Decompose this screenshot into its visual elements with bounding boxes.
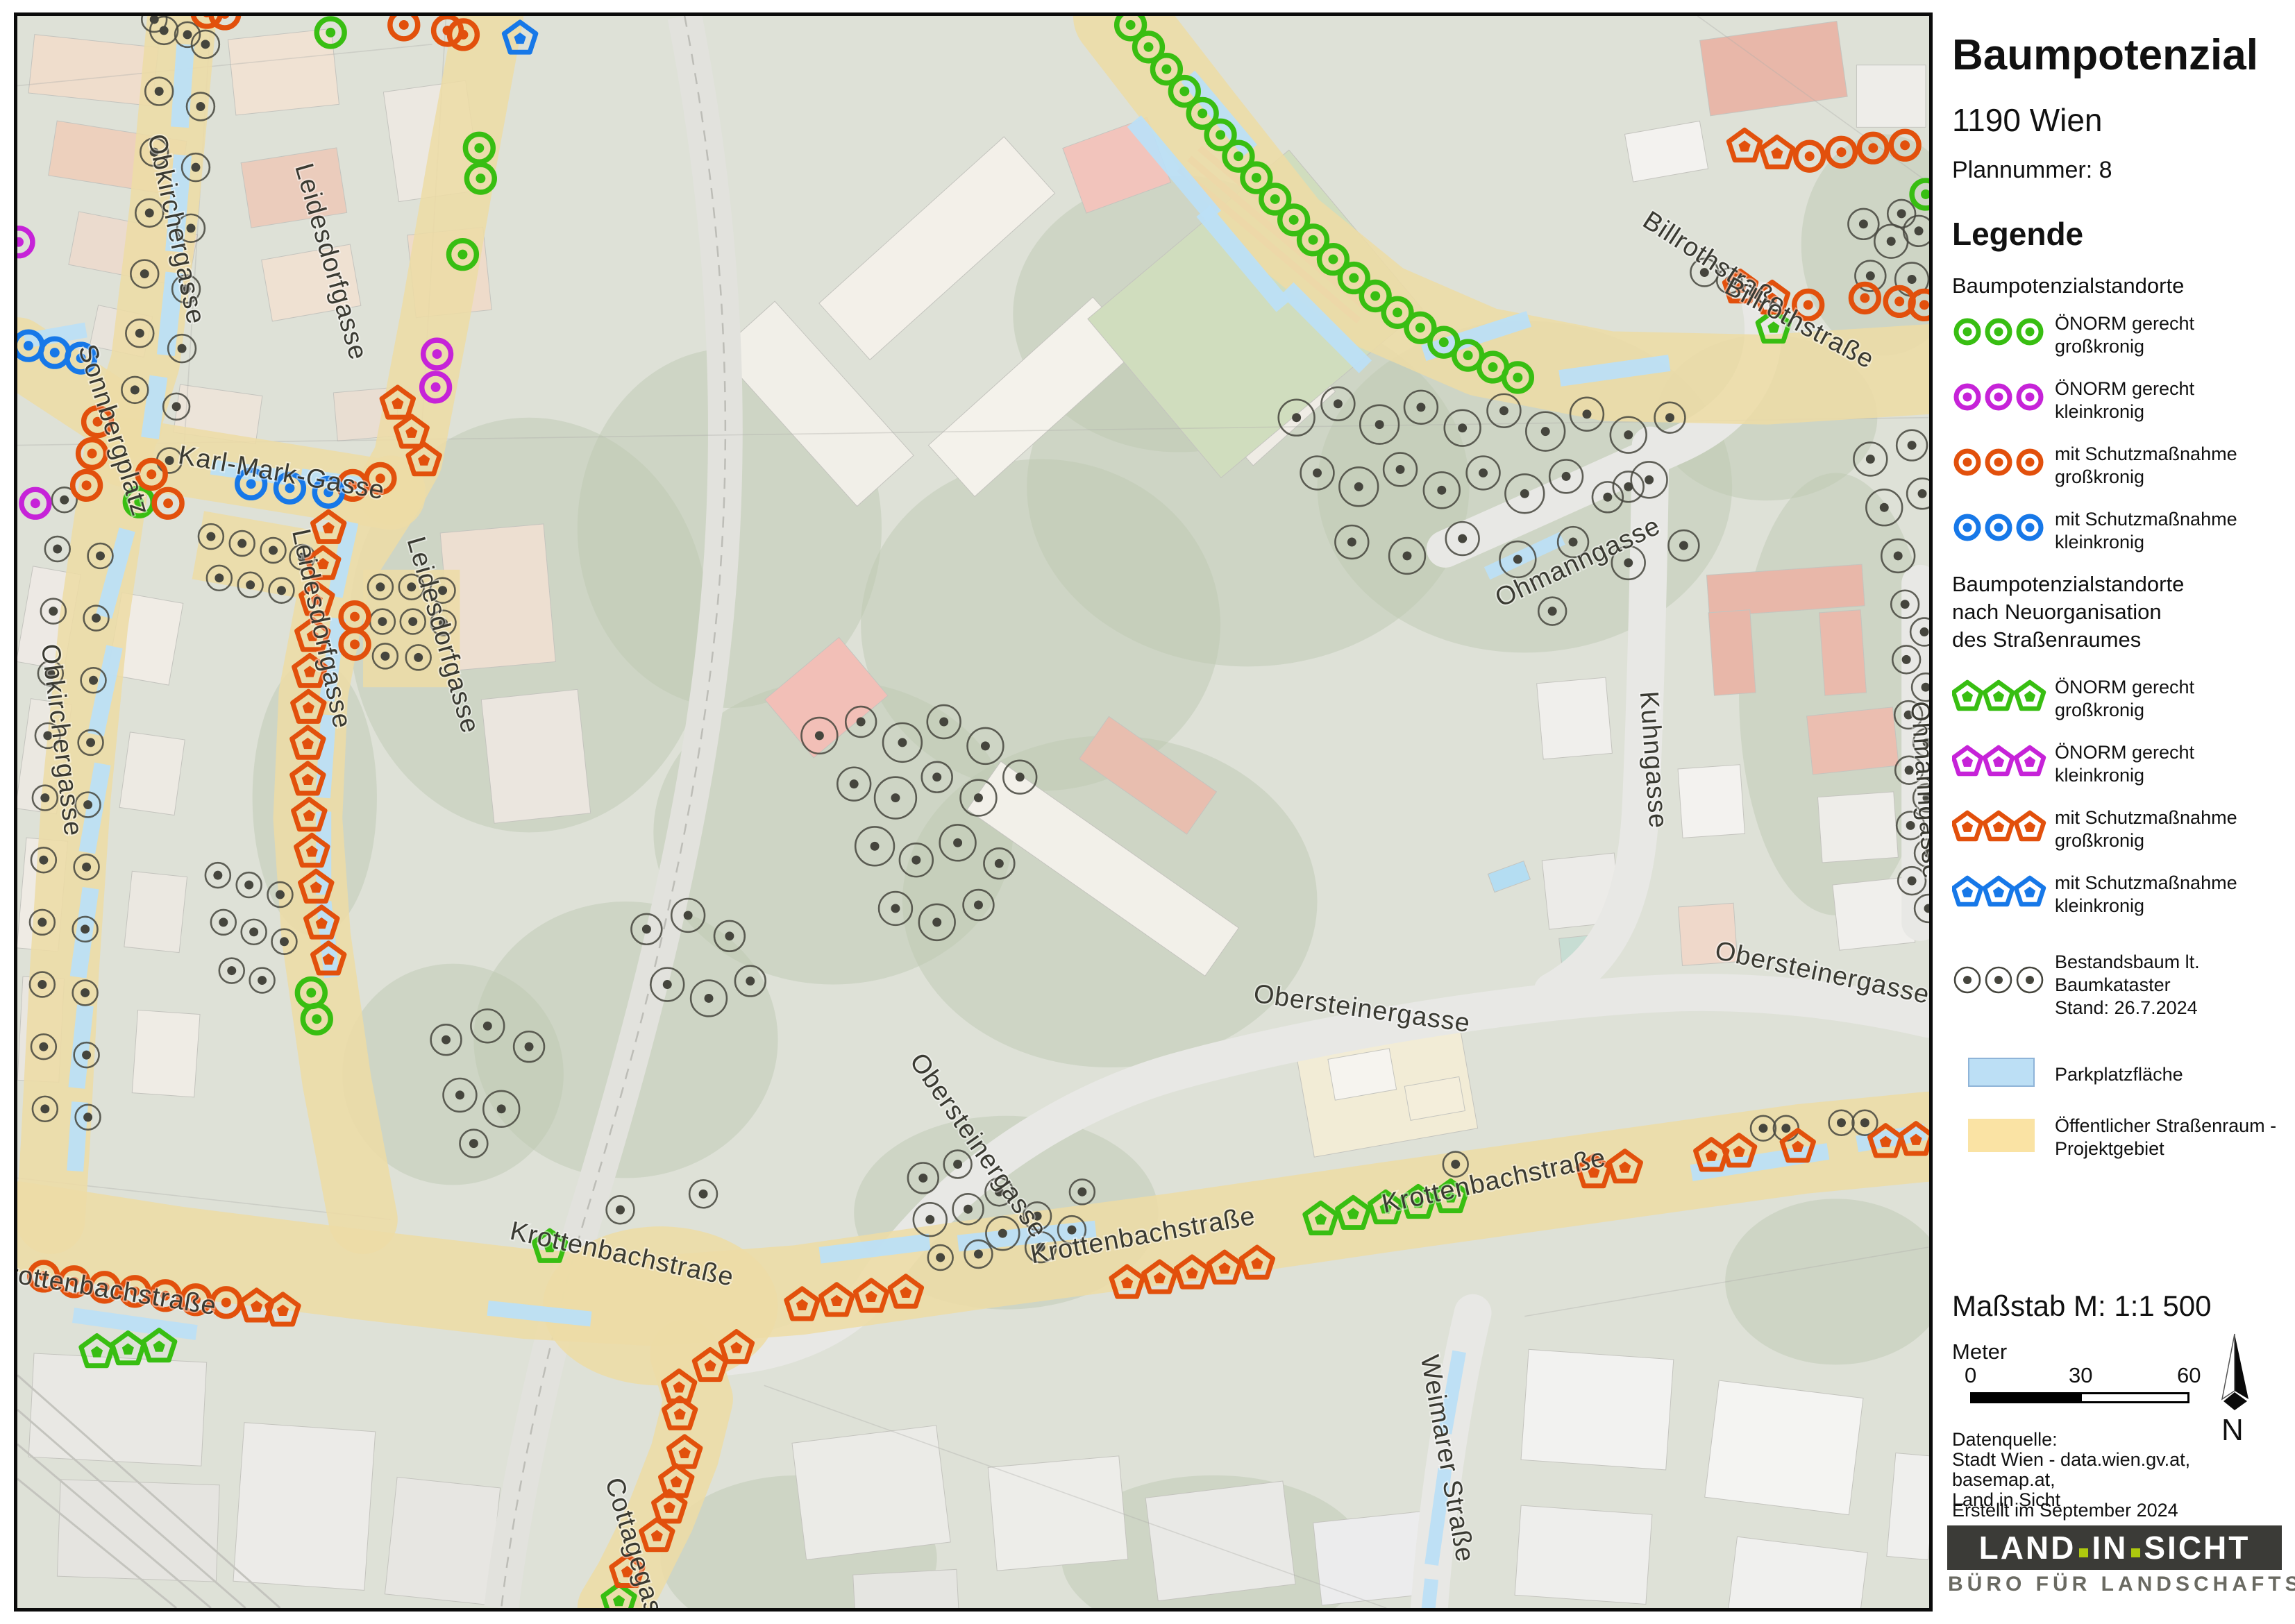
legend-section2-heading: Baumpotenzialstandorte nach Neuorganisat… (1952, 570, 2184, 654)
pentagon-legend-icon (1952, 806, 2049, 845)
scale-unit: Meter (1952, 1339, 2007, 1364)
scale-bar (1970, 1392, 2189, 1403)
legend-item-label: ÖNORM gerechtgroßkronig (2055, 312, 2194, 358)
logo-text: LANDINSICHT (1979, 1529, 2251, 1566)
circle-symbol-icon (1952, 508, 2049, 547)
legend-item-pentagon-green: ÖNORM gerechtgroßkronig (1952, 676, 2285, 715)
strassenraum-swatch (1968, 1119, 2035, 1152)
legend-item-circle-blue: mit Schutzmaßnahmekleinkronig (1952, 508, 2285, 547)
source-line: Datenquelle: (1952, 1430, 2295, 1450)
circle-symbol-icon (1952, 312, 2049, 351)
legend-item-pentagon-blue: mit Schutzmaßnahmekleinkronig (1952, 872, 2285, 911)
pentagon-symbol-icon (1952, 806, 2049, 845)
section2-line: des Straßenraumes (1952, 626, 2184, 654)
section2-line: nach Neuorganisation (1952, 598, 2184, 626)
scale-tick-60: 60 (2177, 1363, 2201, 1388)
legend-item-bestand: Bestandsbaum lt.BaumkatasterStand: 26.7.… (1952, 951, 2285, 1013)
legend-item-pentagon-magenta: ÖNORM gerechtkleinkronig (1952, 741, 2285, 780)
north-arrow-icon (2213, 1331, 2256, 1416)
legend-item-label: Bestandsbaum lt.BaumkatasterStand: 26.7.… (2055, 951, 2200, 1020)
circle-legend-icon (1952, 443, 2049, 482)
circle-legend-icon (1952, 378, 2049, 416)
logo-dot-square (2131, 1548, 2140, 1557)
pentagon-legend-icon (1952, 741, 2049, 780)
scale-bar-empty (2080, 1392, 2189, 1403)
pentagon-legend-icon (1952, 872, 2049, 911)
land-in-sicht-logo: LANDINSICHT (1947, 1525, 2282, 1570)
plan-number: Plannummer: 8 (1952, 157, 2112, 184)
legend-item-label: mit Schutzmaßnahmekleinkronig (2055, 872, 2237, 917)
bestand-legend-icon (1952, 961, 2049, 999)
strassenraum-line: Öffentlicher Straßenraum - (2055, 1115, 2276, 1137)
legend-section1-heading: Baumpotenzialstandorte (1952, 272, 2184, 300)
plan-page: ObkirchergasseObkirchergasseSonnbergplat… (0, 0, 2295, 1624)
map-canvas: ObkirchergasseObkirchergasseSonnbergplat… (14, 12, 1933, 1612)
legend-item-label: mit Schutzmaßnahmegroßkronig (2055, 806, 2237, 852)
legend-item-circle-magenta: ÖNORM gerechtkleinkronig (1952, 378, 2285, 416)
circle-symbol-icon (1952, 443, 2049, 482)
logo-subtitle: BÜRO FÜR LANDSCHAFTSPLANUNG (1948, 1573, 2283, 1596)
pentagon-symbol-icon (1952, 676, 2049, 715)
circle-symbol-icon (1952, 378, 2049, 416)
scale-tick-0: 0 (1965, 1363, 1976, 1388)
legend-panel: Baumpotenzial 1190 Wien Plannummer: 8 Le… (1941, 0, 2295, 1624)
district-subtitle: 1190 Wien (1952, 101, 2103, 139)
aerial-map: ObkirchergasseObkirchergasseSonnbergplat… (17, 16, 1929, 1608)
scale-text: Maßstab M: 1:1 500 (1952, 1289, 2212, 1323)
scale-tick-30: 30 (2069, 1363, 2092, 1388)
strassenraum-label: Öffentlicher Straßenraum - Projektgebiet (2055, 1115, 2276, 1160)
legend-item-label: ÖNORM gerechtkleinkronig (2055, 741, 2194, 787)
circle-legend-icon (1952, 508, 2049, 547)
data-source: Datenquelle: Stadt Wien - data.wien.gv.a… (1952, 1430, 2295, 1510)
strassenraum-line: Projektgebiet (2055, 1137, 2276, 1160)
pentagon-symbol-icon (1952, 872, 2049, 911)
legend-item-circle-orange: mit Schutzmaßnahmegroßkronig (1952, 443, 2285, 482)
legend-item-circle-green: ÖNORM gerechtgroßkronig (1952, 312, 2285, 351)
parkplatz-label: Parkplatzfläche (2055, 1063, 2183, 1086)
legend-item-label: ÖNORM gerechtkleinkronig (2055, 378, 2194, 423)
parkplatz-swatch (1968, 1058, 2035, 1087)
legend-item-pentagon-orange: mit Schutzmaßnahmegroßkronig (1952, 806, 2285, 845)
scale-bar-filled (1970, 1392, 2080, 1403)
bestand-symbol-icon (1952, 961, 2049, 999)
legend-item-label: mit Schutzmaßnahmegroßkronig (2055, 443, 2237, 489)
page-title: Baumpotenzial (1952, 31, 2258, 80)
circle-legend-icon (1952, 312, 2049, 351)
legend-heading: Legende (1952, 215, 2083, 253)
legend-item-label: mit Schutzmaßnahmekleinkronig (2055, 508, 2237, 554)
pentagon-legend-icon (1952, 676, 2049, 715)
legend-item-label: ÖNORM gerechtgroßkronig (2055, 676, 2194, 722)
created-date: Erstellt im September 2024 (1952, 1500, 2178, 1521)
source-line: Stadt Wien - data.wien.gv.at, basemap.at… (1952, 1450, 2295, 1490)
section2-line: Baumpotenzialstandorte (1952, 570, 2184, 598)
pentagon-symbol-icon (1952, 741, 2049, 780)
logo-dot-square (2079, 1548, 2088, 1557)
